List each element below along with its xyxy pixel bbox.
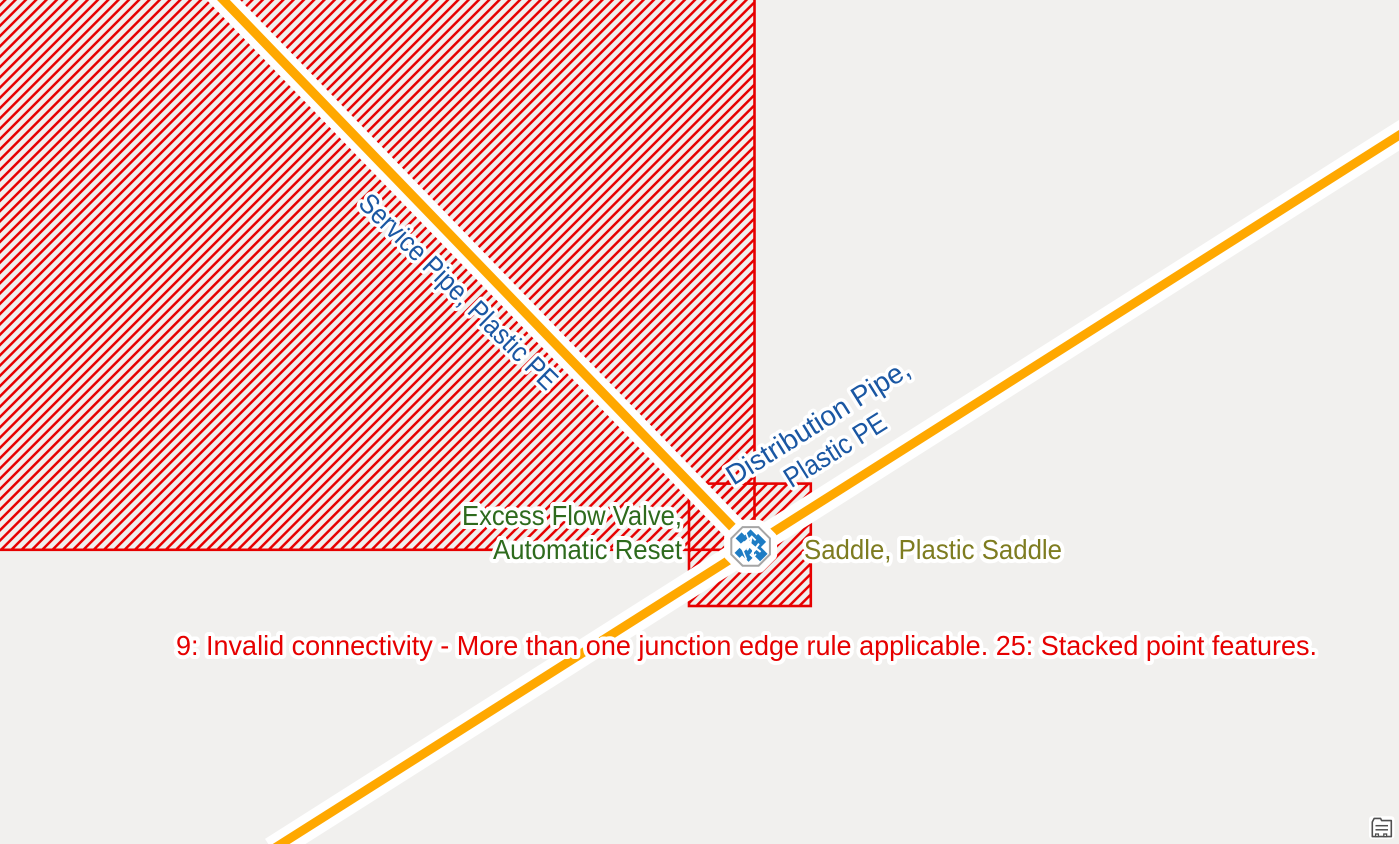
svg-text:Automatic Reset: Automatic Reset [493, 534, 682, 565]
svg-text:Excess Flow Valve,: Excess Flow Valve, [462, 500, 682, 531]
svg-text:9: Invalid connectivity - More: 9: Invalid connectivity - More than one … [176, 630, 1317, 661]
svg-text:Saddle, Plastic Saddle: Saddle, Plastic Saddle [804, 534, 1062, 565]
